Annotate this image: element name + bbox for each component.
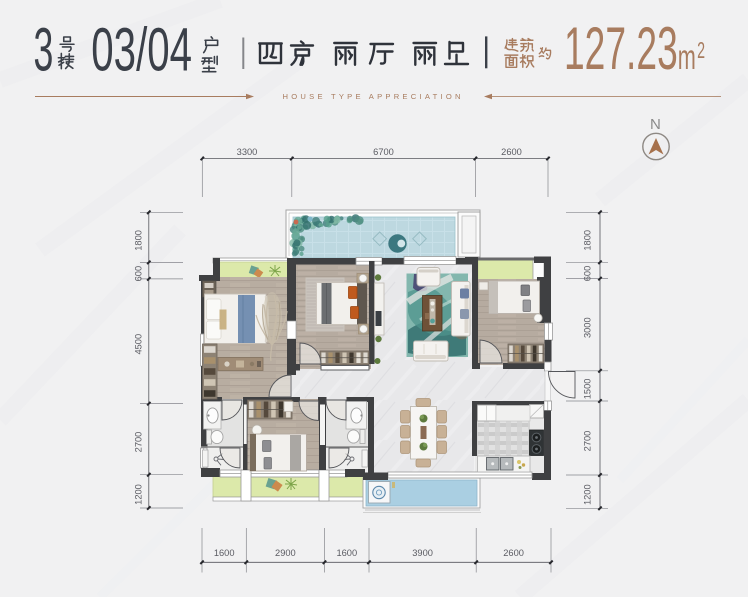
svg-text:2700: 2700: [134, 432, 144, 453]
svg-text:03/04: 03/04: [91, 15, 192, 83]
svg-text:3: 3: [34, 16, 54, 84]
svg-text:1800: 1800: [583, 230, 593, 251]
svg-text:600: 600: [134, 266, 144, 282]
svg-text:2600: 2600: [503, 548, 524, 558]
svg-text:3000: 3000: [583, 317, 593, 338]
svg-text:1500: 1500: [583, 379, 593, 400]
svg-text:HOUSE TYPE APPRECIATION: HOUSE TYPE APPRECIATION: [283, 92, 464, 101]
svg-text:4500: 4500: [134, 334, 144, 355]
svg-text:1600: 1600: [336, 548, 357, 558]
svg-text:1800: 1800: [134, 230, 144, 251]
svg-text:6700: 6700: [373, 147, 394, 157]
svg-text:2900: 2900: [275, 548, 296, 558]
svg-text:1200: 1200: [583, 484, 593, 505]
svg-text:2600: 2600: [501, 147, 522, 157]
svg-text:1200: 1200: [134, 484, 144, 505]
svg-text:600: 600: [583, 266, 593, 282]
svg-text:3300: 3300: [237, 147, 258, 157]
svg-text:3900: 3900: [412, 548, 433, 558]
svg-text:1600: 1600: [214, 548, 235, 558]
svg-text:N: N: [650, 116, 661, 133]
svg-text:2700: 2700: [583, 431, 593, 452]
